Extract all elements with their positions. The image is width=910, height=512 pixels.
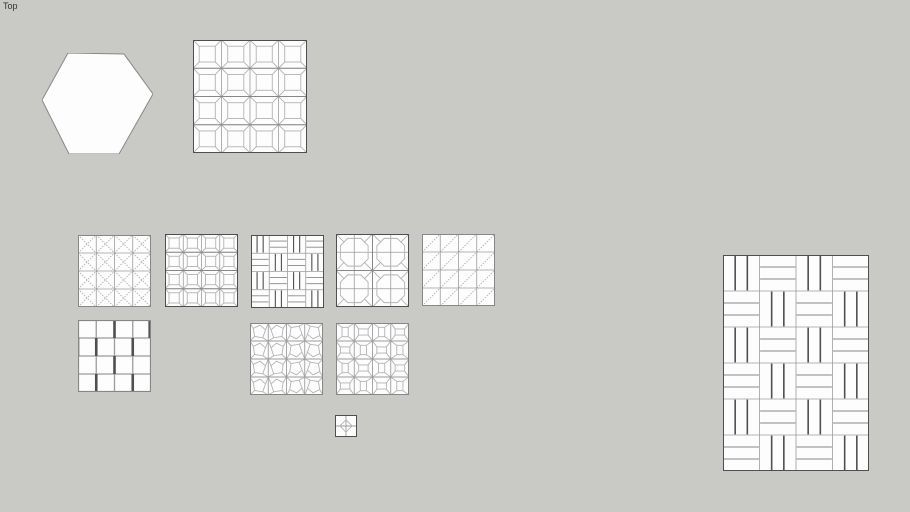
viewport-canvas[interactable]: Top — [0, 0, 910, 512]
frustum-pattern-panel[interactable] — [336, 323, 409, 395]
diagonal-cross-panel[interactable] — [78, 235, 151, 307]
basketweave-panel-small[interactable] — [251, 235, 324, 308]
hexagon-tile[interactable] — [42, 53, 153, 154]
stone-pattern-panel[interactable] — [250, 323, 323, 395]
single-diagonal-panel[interactable] — [422, 234, 495, 306]
small-quad-diamond-tile[interactable] — [335, 415, 357, 437]
octagon-coffer-panel[interactable] — [336, 234, 409, 307]
view-label: Top — [3, 1, 18, 12]
coffered-panel-large[interactable] — [193, 40, 307, 153]
basketweave-panel-large[interactable] — [723, 255, 869, 471]
coffered-panel-small[interactable] — [165, 234, 238, 307]
offset-squares-panel[interactable] — [78, 320, 151, 392]
